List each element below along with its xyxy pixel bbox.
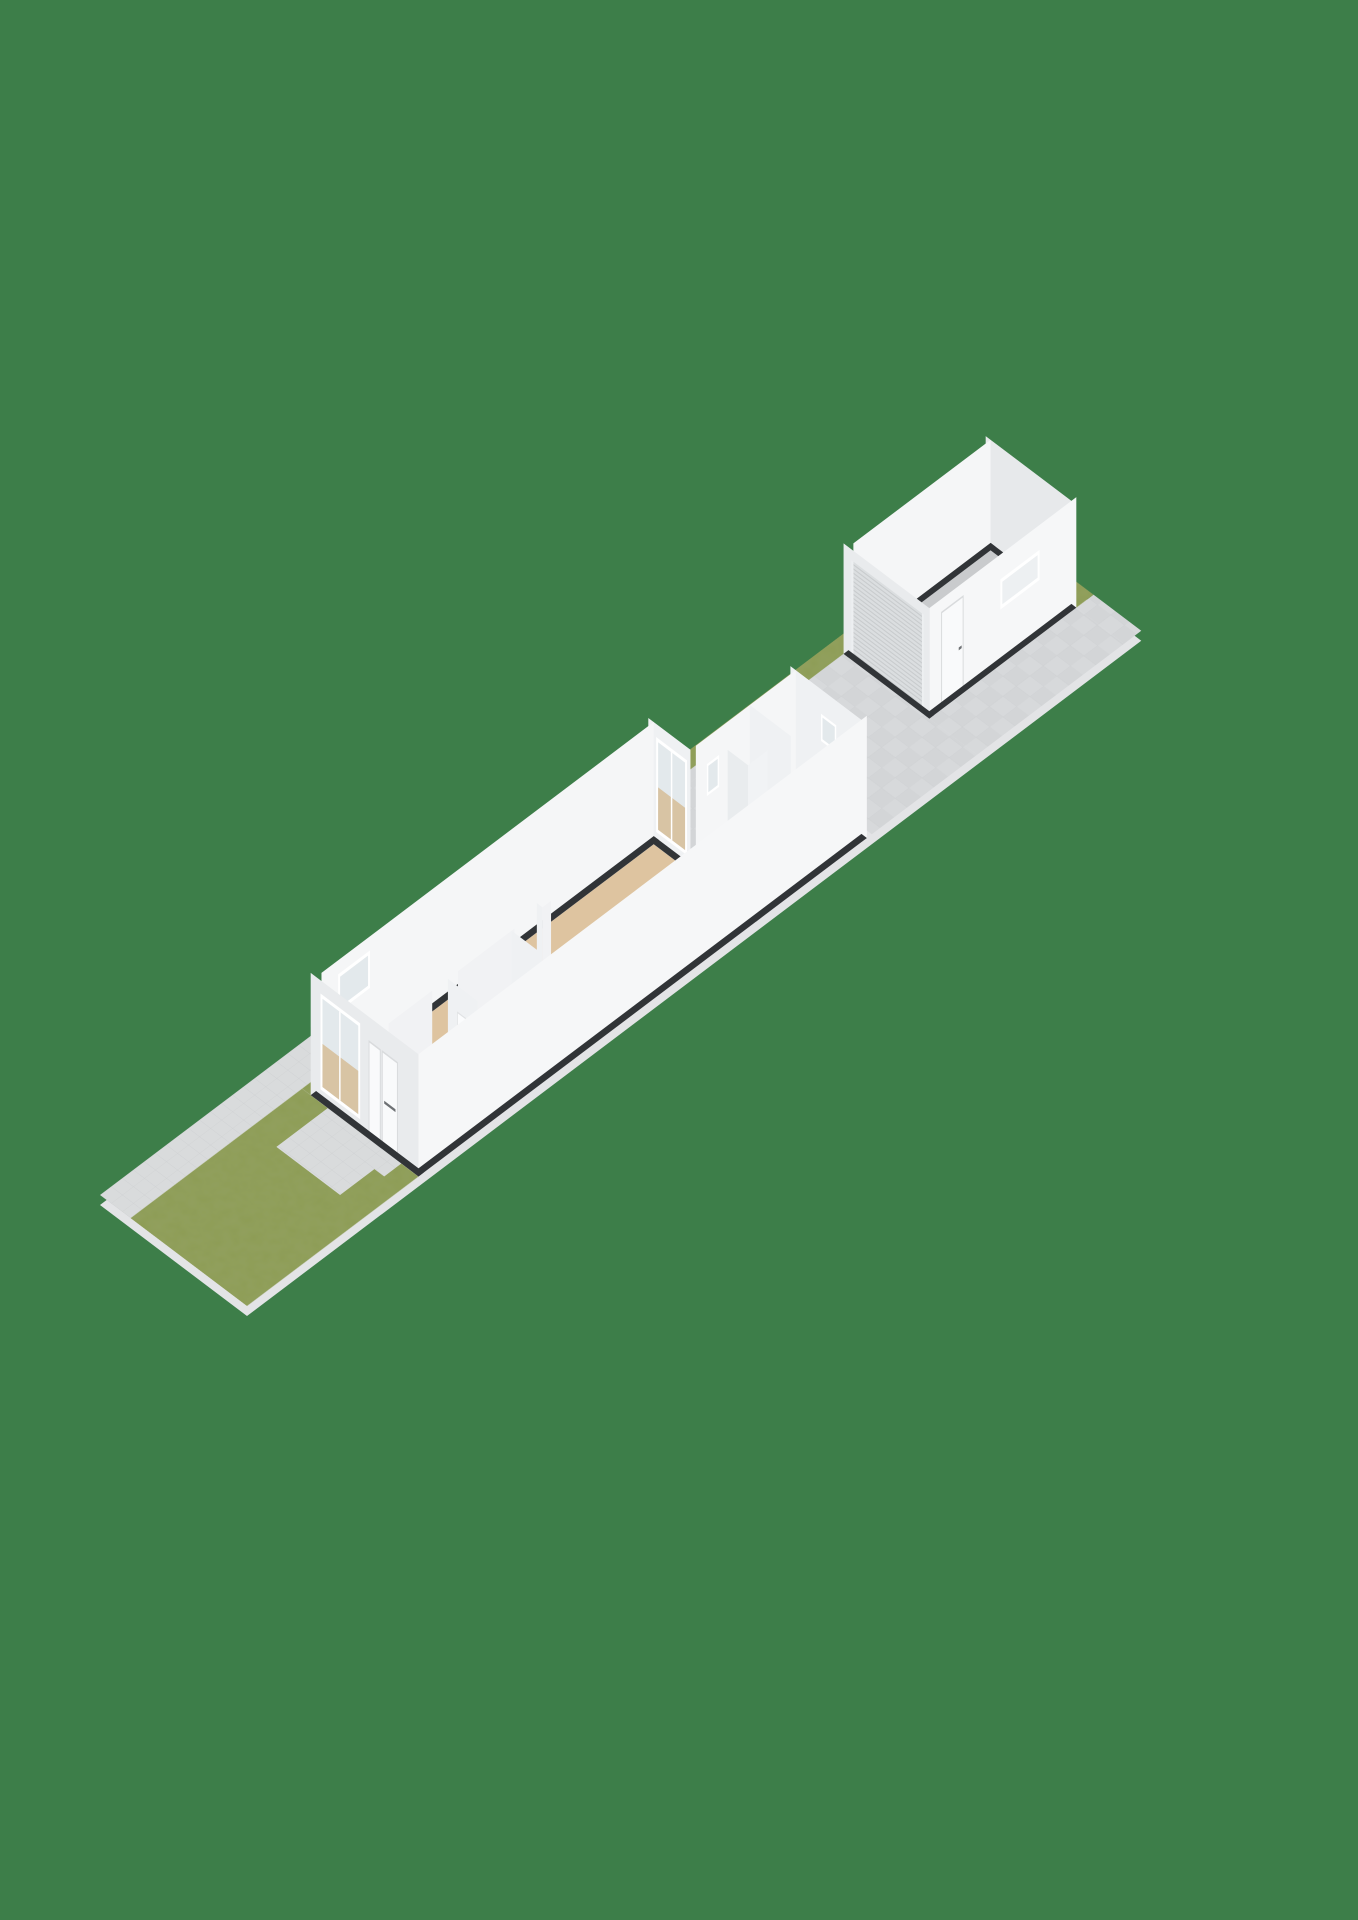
site-plan-3d [0, 0, 1358, 1920]
terrace-window-mullion [671, 752, 672, 841]
front-window-mullion [339, 1011, 340, 1100]
roller-rail-left [851, 560, 853, 661]
floorplan-stage: site-plan-perspective [0, 0, 1358, 1920]
floorplan-scene [0, 0, 1358, 1920]
utility-door [369, 1041, 380, 1147]
roller-rail-right [922, 613, 924, 714]
